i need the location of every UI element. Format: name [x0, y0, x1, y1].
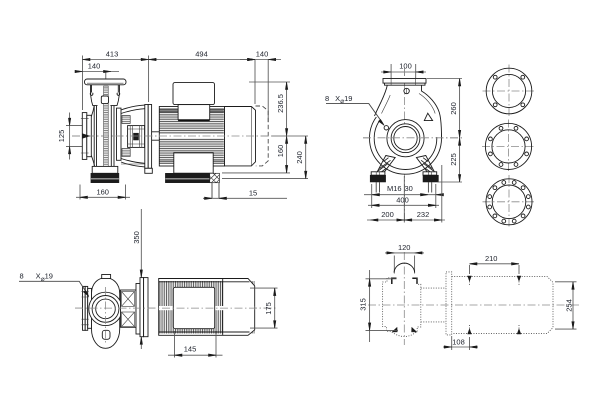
svg-text:200: 200: [381, 210, 394, 219]
svg-text:232: 232: [417, 210, 430, 219]
svg-text:100: 100: [399, 61, 412, 70]
svg-text:108: 108: [452, 338, 465, 347]
svg-text:236.5: 236.5: [276, 94, 285, 113]
svg-text:120: 120: [398, 243, 411, 252]
svg-text:160: 160: [96, 187, 109, 196]
svg-text:494: 494: [195, 50, 208, 59]
svg-text:140: 140: [256, 50, 269, 59]
svg-text:30: 30: [405, 184, 413, 193]
svg-text:M16: M16: [387, 184, 402, 193]
svg-text:140: 140: [88, 62, 101, 71]
svg-text:254: 254: [565, 299, 574, 312]
svg-text:260: 260: [449, 102, 458, 115]
svg-text:145: 145: [184, 345, 197, 354]
svg-text:125: 125: [57, 130, 66, 143]
svg-text:315: 315: [359, 298, 368, 311]
svg-text:225: 225: [449, 153, 458, 166]
svg-text:210: 210: [485, 254, 498, 263]
svg-text:400: 400: [396, 195, 409, 204]
svg-text:160: 160: [276, 145, 285, 158]
svg-text:175: 175: [264, 302, 273, 315]
svg-text:15: 15: [249, 188, 257, 197]
svg-text:350: 350: [132, 231, 141, 244]
svg-text:413: 413: [106, 50, 119, 59]
svg-text:240: 240: [295, 151, 304, 164]
